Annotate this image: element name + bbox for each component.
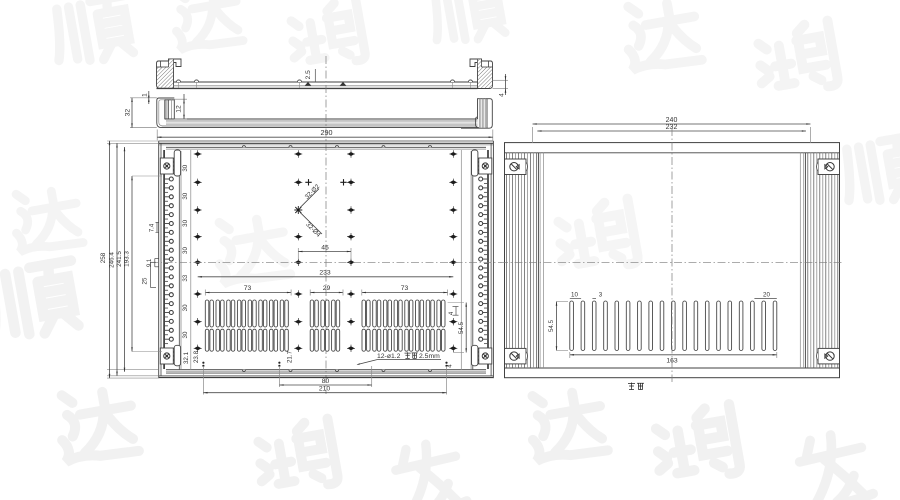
- svg-text:23.8: 23.8: [193, 350, 200, 363]
- svg-text:30: 30: [182, 164, 189, 171]
- svg-text:29: 29: [323, 285, 331, 292]
- svg-text:10: 10: [571, 291, 578, 298]
- svg-text:45: 45: [321, 244, 329, 251]
- svg-text:7.4: 7.4: [150, 223, 156, 232]
- svg-text:241.5: 241.5: [116, 251, 123, 267]
- svg-text:4: 4: [499, 93, 506, 97]
- svg-text:80: 80: [322, 378, 330, 385]
- svg-text:210: 210: [319, 385, 331, 392]
- svg-text:240: 240: [666, 117, 678, 124]
- svg-text:3: 3: [599, 291, 603, 298]
- svg-text:25: 25: [142, 277, 149, 284]
- svg-text:232: 232: [666, 124, 678, 131]
- svg-text:290: 290: [321, 128, 333, 137]
- svg-text:30: 30: [182, 192, 189, 199]
- svg-text:33: 33: [182, 274, 189, 281]
- svg-text:54.5: 54.5: [548, 319, 555, 332]
- svg-text:21.7: 21.7: [287, 350, 294, 363]
- svg-text:73: 73: [401, 285, 409, 292]
- svg-text:32: 32: [125, 109, 132, 117]
- svg-text:2.5: 2.5: [305, 70, 312, 79]
- svg-text:12: 12: [176, 105, 183, 113]
- svg-text:2.5mm: 2.5mm: [419, 353, 440, 360]
- svg-text:1: 1: [142, 93, 149, 97]
- svg-text:30: 30: [182, 247, 189, 254]
- svg-text:246.4: 246.4: [108, 252, 115, 268]
- svg-text:12-ø1.2: 12-ø1.2: [377, 353, 401, 360]
- svg-text:9.1: 9.1: [147, 258, 153, 267]
- svg-text:73: 73: [244, 285, 252, 292]
- svg-text:32.1: 32.1: [183, 351, 190, 364]
- svg-text:30: 30: [182, 304, 189, 311]
- svg-text:193.3: 193.3: [123, 251, 130, 267]
- svg-text:30: 30: [182, 331, 189, 338]
- svg-text:258: 258: [100, 252, 107, 263]
- svg-text:54.5: 54.5: [458, 321, 465, 334]
- svg-text:233: 233: [319, 269, 331, 276]
- svg-text:30: 30: [182, 219, 189, 226]
- svg-text:20: 20: [763, 291, 770, 298]
